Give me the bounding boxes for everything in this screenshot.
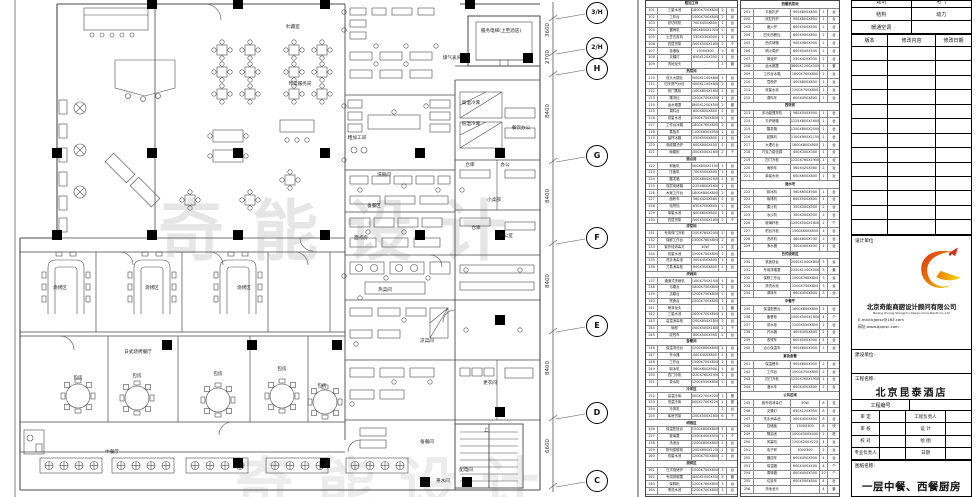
schedule-row: 207微波炉550X420X3302台	[741, 56, 839, 64]
schedule-cell: 开水器	[754, 330, 791, 337]
schedule-cell: 207	[741, 56, 754, 63]
schedule-row: 138污碟台1800X750X8001台	[646, 285, 737, 292]
schedule-row: 201平板扒炉900X800X8501台	[741, 9, 839, 17]
schedule-cell: 台	[727, 441, 738, 447]
schedule-cell: 1	[719, 441, 727, 447]
schedule-cell: 库房货架	[658, 414, 692, 420]
schedule-cell: 台	[828, 322, 840, 329]
schedule-group-row: 粗加工间	[646, 1, 737, 8]
revision-empty-row	[852, 61, 971, 75]
schedule-cell: 紫外线消毒灯	[658, 245, 692, 251]
signature-cell	[880, 448, 906, 459]
schedule-cell: 650X120X350	[692, 55, 719, 61]
schedule-cell: 146	[646, 346, 658, 352]
schedule-cell: 215	[741, 126, 754, 133]
schedule-cell: 台	[727, 454, 738, 460]
design-unit-label: 设计单位	[855, 238, 873, 244]
schedule-cell: 125	[646, 184, 658, 190]
schedule-cell: 块	[828, 424, 840, 431]
project-name: 北京昆泰酒店	[852, 384, 971, 399]
schedule-cell: 清洗水池	[658, 488, 692, 494]
schedule-cell: 1	[719, 62, 727, 68]
schedule-cell: 台	[727, 109, 738, 115]
schedule-cell: 255	[741, 479, 754, 486]
schedule-cell: 204	[741, 32, 754, 39]
schedule-cell: 工作台	[658, 15, 692, 21]
schedule-group-title: 公共区域	[741, 392, 839, 399]
schedule-cell: 1200X200X220	[791, 439, 820, 446]
schedule-cell: 1500X700X800	[791, 369, 820, 376]
schedule-row: 208运水烟罩3600X1200X5001套	[741, 64, 839, 72]
revision-empty-cell	[936, 47, 971, 60]
schedule-cell: 台	[727, 231, 738, 237]
schedule-cell: 1	[719, 434, 727, 440]
signature-cell	[946, 436, 971, 447]
schedule-cell: 1	[820, 126, 828, 133]
schedule-group-title: 宴会备餐	[741, 353, 839, 360]
project-name-label: 工程名称:	[855, 376, 875, 382]
schedule-cell: 550X550X850	[692, 136, 719, 142]
schedule-group-title: 洗碗间	[646, 272, 737, 278]
schedule-row: 107挂墙板1500X3002块	[646, 48, 737, 55]
schedule-cell: 800X900X850	[791, 32, 820, 39]
revision-empty-cell	[852, 177, 888, 190]
schedule-cell: 232	[741, 275, 754, 282]
schedule-cell: 1	[719, 285, 727, 291]
schedule-cell: 收残车	[754, 338, 791, 345]
schedule-cell: 面粉车	[754, 165, 791, 172]
schedule-cell: 2	[719, 218, 727, 224]
schedule-cell: 2	[820, 322, 828, 329]
schedule-row: 116双星水池1500X700X8002台	[646, 116, 737, 123]
schedule-cell: 台	[727, 204, 738, 210]
schedule-cell: 3	[719, 481, 727, 487]
schedule-cell: 1	[820, 228, 828, 235]
schedule-cell: 154	[646, 407, 658, 413]
schedule-cell: 1	[820, 64, 828, 71]
revision-empty-cell	[888, 148, 936, 161]
signature-cell: 日期	[906, 448, 946, 459]
schedule-cell: 227	[741, 228, 754, 235]
schedule-row: 252器皿车600X450X9004台	[741, 455, 839, 463]
schedule-cell: 个	[727, 150, 738, 156]
schedule-cell: 234	[741, 291, 754, 298]
signature-cell	[946, 423, 971, 434]
schedule-group-row: 西餐热菜间	[741, 1, 839, 9]
schedule-cell: 1	[719, 143, 727, 149]
revision-empty-cell	[888, 105, 936, 118]
schedule-cell: 400X400X800	[791, 330, 820, 337]
schedule-cell: 103	[646, 21, 658, 27]
schedule-cell: 144	[646, 326, 658, 332]
schedule-cell: 运水烟罩	[658, 102, 692, 108]
schedule-cell: 1	[719, 373, 727, 379]
schedule-cell: 1200X600X1200	[692, 448, 719, 454]
schedule-cell: 900X600X950	[791, 361, 820, 368]
schedule-cell: 保温售饭台	[658, 427, 692, 433]
schedule-cell: 台	[727, 8, 738, 14]
dimension-label: 8400	[545, 98, 555, 124]
schedule-cell: 101	[646, 8, 658, 14]
schedule-cell: 212	[741, 95, 754, 102]
schedule-cell: 台	[727, 28, 738, 34]
schedule-cell: 台	[727, 427, 738, 433]
schedule-cell: 四门冷柜	[754, 377, 791, 384]
schedule-cell: 233	[741, 283, 754, 290]
schedule-cell: 2	[820, 220, 828, 227]
revision-empty-cell	[936, 119, 971, 132]
schedule-cell: 1200X650X1850	[692, 319, 719, 325]
schedule-cell: 铁板烧台	[754, 259, 791, 266]
schedule-cell: 木案工作台	[658, 190, 692, 196]
schedule-cell: 1	[719, 136, 727, 142]
signature-cell: 工程负责人	[906, 411, 946, 422]
schedule-cell: -	[692, 62, 719, 68]
schedule-row: 216起酥机1100X900X11501台	[741, 134, 839, 142]
schedule-cell: 162	[646, 475, 658, 481]
schedule-cell: 202	[741, 17, 754, 24]
schedule-cell: 248	[741, 424, 754, 431]
schedule-cell: 矮汤灶	[658, 96, 692, 102]
schedule-cell: 126	[646, 190, 658, 196]
revision-empty-row	[852, 90, 971, 104]
schedule-cell: 起酥机	[754, 134, 791, 141]
schedule-cell: 1500X500X1800	[692, 42, 719, 48]
schedule-cell: 台	[727, 312, 738, 318]
schedule-cell: 209	[741, 71, 754, 78]
schedule-cell: 台	[727, 211, 738, 217]
schedule-row: 161日式烧烤炉1500X700X8003台	[646, 468, 737, 475]
schedule-cell: 600X500X900	[692, 333, 719, 339]
schedule-row: 111四头燃气炒灶2400X1100X8002台	[646, 82, 737, 89]
revision-empty-cell	[888, 76, 936, 89]
schedule-cell: 201	[741, 9, 754, 16]
revision-empty-cell	[852, 148, 888, 161]
schedule-row: 239收残车600X500X9004台	[741, 338, 839, 346]
schedule-cell: 102	[646, 15, 658, 21]
schedule-cell: 1	[820, 173, 828, 180]
schedule-cell: 226	[741, 220, 754, 227]
schedule-cell: 2	[719, 407, 727, 413]
schedule-cell: 108	[646, 55, 658, 61]
schedule-cell: 1500X700X800	[692, 468, 719, 474]
schedule-row: 233清洗水池1200X700X8003台	[741, 283, 839, 291]
schedule-cell: 挂墙板	[658, 48, 692, 54]
schedule-cell: 四门冷柜	[754, 158, 791, 165]
schedule-cell: 400X400X800	[692, 353, 719, 359]
schedule-row: 221单星水池600X600X8001台	[741, 173, 839, 181]
schedule-cell: 3	[719, 475, 727, 481]
schedule-cell: 1	[820, 142, 828, 149]
schedule-group-title: 备餐间	[646, 339, 737, 345]
schedule-cell: 保温配餐台	[754, 306, 791, 313]
room-label: 洗碗间	[377, 172, 391, 178]
schedule-row: 250风幕机1200X200X2204台	[741, 439, 839, 447]
schedule-cell: 228	[741, 236, 754, 243]
schedule-cell: 246	[741, 408, 754, 415]
schedule-cell: 双星水池	[658, 116, 692, 122]
company-name-en: Beijing Qineng Shangchu Design Consultan…	[852, 311, 971, 315]
schedule-cell: 茶水柜	[658, 380, 692, 386]
revision-empty-row	[852, 163, 971, 177]
schedule-cell: 122	[646, 163, 658, 169]
dimension-label: 8400	[545, 355, 555, 381]
schedule-cell: 1200X700X800	[791, 87, 820, 94]
schedule-row: 226玻璃杯柜1200X500X18002个	[741, 220, 839, 228]
schedule-cell: 台	[828, 173, 840, 180]
revision-empty-cell	[936, 90, 971, 103]
schedule-group-row: 酒水吧	[741, 181, 839, 189]
schedule-cell: 台	[828, 32, 840, 39]
schedule-cell: -	[791, 486, 820, 493]
schedule-row: 125双层电烤箱1225X800X16001台	[646, 184, 737, 191]
schedule-cell: 8	[820, 424, 828, 431]
schedule-cell: 1000X700X800	[692, 299, 719, 305]
schedule-cell: 2100X750X1500	[692, 278, 719, 284]
schedule-row: 150四门冷柜1220X760X19501台	[646, 373, 737, 380]
schedule-row: 156保温售饭台1500X800X8001台	[646, 427, 737, 434]
schedule-cell: 3600X1200X500	[791, 64, 820, 71]
schedule-cell: 台	[828, 158, 840, 165]
project-number-row: 工程编号	[852, 399, 971, 411]
schedule-cell: 碗柜	[658, 326, 692, 332]
schedule-cell: 专用双门冷柜	[658, 231, 692, 237]
room-label: 烧烤区	[237, 285, 251, 291]
revision-empty-cell	[936, 61, 971, 74]
room-label: 包房	[317, 383, 326, 389]
schedule-group-row: 热菜间	[646, 69, 737, 76]
schedule-cell: 1800X700X800	[692, 312, 719, 318]
revision-empty-cell	[936, 76, 971, 89]
schedule-row: 225冰沙机300X300X5001台	[741, 212, 839, 220]
schedule-cell: 1800X760X800	[692, 123, 719, 129]
schedule-cell: 台	[727, 21, 738, 27]
schedule-cell: 净水器	[754, 244, 791, 251]
schedule-cell: 1100X900X1150	[791, 134, 820, 141]
schedule-cell: 1200X700X800	[692, 251, 719, 257]
schedule-cell: 双缸炸炉	[754, 17, 791, 24]
schedule-cell: 600X450X800	[791, 385, 820, 392]
signature-cell: 审 核	[852, 423, 880, 434]
schedule-group-title: 烧烤区	[646, 461, 737, 467]
schedule-cell: 台	[828, 17, 840, 24]
schedule-row: 140残食台1000X700X8001台	[646, 299, 737, 306]
discipline-cell: 动力	[912, 8, 972, 20]
schedule-cell: 700X450X800	[692, 21, 719, 27]
schedule-cell: 2	[719, 109, 727, 115]
schedule-cell: 专用排烟罩	[658, 475, 692, 481]
schedule-cell: 台	[727, 130, 738, 136]
schedule-cell: 530X530X900	[692, 35, 719, 41]
schedule-cell: 玻璃杯柜	[754, 220, 791, 227]
schedule-cell: 111	[646, 82, 658, 88]
discipline-cell: 电气	[912, 0, 972, 7]
schedule-row: 256洗地龙头-4套	[741, 486, 839, 494]
schedule-cell: 400X800X850	[791, 79, 820, 86]
schedule-cell: 2	[820, 32, 828, 39]
build-unit-label: 建设单位:	[855, 352, 875, 358]
dimension-label: 2700	[545, 44, 555, 70]
signature-row: 校 对绘 图	[852, 436, 971, 448]
schedule-row: 213多功能搅拌机560X500X9001台	[741, 111, 839, 119]
schedule-cell: 6	[820, 416, 828, 423]
schedule-cell: 206	[741, 48, 754, 55]
schedule-cell: 1500X700X800	[692, 360, 719, 366]
schedule-cell: 器皿车	[754, 455, 791, 462]
schedule-cell: 洗地龙头	[754, 486, 791, 493]
schedule-cell: 105	[646, 35, 658, 41]
room-label: 配电间	[459, 467, 473, 473]
room-label: 茶水间	[436, 478, 450, 484]
schedule-row: 222制冰机560X600X9001台	[741, 189, 839, 197]
revision-empty-cell	[852, 61, 888, 74]
schedule-cell: 2	[719, 42, 727, 48]
revision-header-cell: 修改内容	[888, 35, 936, 46]
room-label: 中餐厅	[105, 449, 119, 455]
schedule-cell: 8	[820, 408, 828, 415]
schedule-cell: 1	[719, 305, 727, 311]
schedule-cell: 台	[828, 142, 840, 149]
schedule-row: 227吧台冷柜1500X600X8501台	[741, 228, 839, 236]
revision-empty-cell	[852, 206, 888, 219]
room-label: 煤气表间	[443, 55, 461, 61]
schedule-row: 122和面机500X600X11001台	[646, 163, 737, 170]
schedule-cell: 1	[820, 134, 828, 141]
schedule-cell: 2	[820, 369, 828, 376]
schedule-cell: 台	[727, 265, 738, 271]
schedule-cell: 保鲜柜	[658, 481, 692, 487]
schedule-group-row: 中餐厅	[741, 298, 839, 306]
schedule-cell: 1200X760X800	[692, 481, 719, 487]
schedule-cell: 600X450X800	[791, 291, 820, 298]
schedule-cell: 洗杯机	[754, 236, 791, 243]
schedule-row: 240点心保温车900X600X9501台	[741, 345, 839, 353]
revision-empty-cell	[936, 134, 971, 147]
schedule-cell: 600X600X800	[692, 211, 719, 217]
title-block: 建筑电气结构动力暖通空调 版本修改内容修改日期 设计单位	[851, 0, 972, 497]
schedule-cell: 129	[646, 211, 658, 217]
schedule-cell: 1200X750X800	[692, 292, 719, 298]
schedule-cell: 208	[741, 64, 754, 71]
dimension-label: 3600	[545, 17, 555, 43]
schedule-cell: 清洗水池	[754, 283, 791, 290]
schedule-cell: 2	[719, 123, 727, 129]
schedule-cell: 242	[741, 369, 754, 376]
schedule-cell: 1	[719, 380, 727, 386]
schedule-cell: 碗碟柜	[658, 150, 692, 156]
schedule-cell: 座	[727, 393, 738, 399]
schedule-cell: 800X540X540	[791, 48, 820, 55]
schedule-cell: 台	[727, 96, 738, 102]
schedule-cell: 保鲜工作台	[658, 238, 692, 244]
schedule-row: 206明火焗炉800X540X5401台	[741, 48, 839, 56]
schedule-cell: 台	[828, 71, 840, 78]
schedule-cell: 113	[646, 96, 658, 102]
schedule-cell: 109	[646, 62, 658, 68]
schedule-cell: 145	[646, 333, 658, 339]
schedule-cell: 119	[646, 136, 658, 142]
schedule-cell: 1800X700X800	[692, 8, 719, 14]
schedule-cell: 560X420X580	[692, 197, 719, 203]
schedule-row: 218巧克力熔化锅400X300X3001台	[741, 150, 839, 158]
schedule-cell: 1	[820, 17, 828, 24]
schedule-cell: 灭蝇灯	[658, 55, 692, 61]
discipline-cell: 结构	[852, 8, 912, 20]
revision-empty-cell	[888, 191, 936, 204]
revision-empty-cell	[888, 61, 936, 74]
schedule-cell: 调味车	[754, 291, 791, 298]
schedule-cell: 1225X800X1600	[692, 184, 719, 190]
schedule-cell: 2	[719, 15, 727, 21]
revision-empty-rows	[852, 47, 971, 235]
schedule-cell: 工作台	[658, 360, 692, 366]
schedule-cell: 152	[646, 393, 658, 399]
room-label: 备餐区	[367, 203, 381, 209]
revision-empty-cell	[936, 148, 971, 161]
schedule-cell: 套	[727, 62, 738, 68]
schedule-cell: 果汁机	[754, 205, 791, 212]
schedule-group-row: 烧烤区	[646, 461, 737, 468]
schedule-row: 164清洗水池1200X700X8003台	[646, 488, 737, 495]
schedule-cell: 117	[646, 123, 658, 129]
schedule-cell: 台	[727, 177, 738, 183]
schedule-cell: 300X300	[791, 447, 820, 454]
schedule-cell: 1225X800X1600	[791, 118, 820, 125]
schedule-cell: 台	[727, 333, 738, 339]
schedule-cell: 醒发箱	[754, 126, 791, 133]
schedule-group-row: 明档区	[646, 420, 737, 427]
schedule-cell: 台	[727, 15, 738, 21]
schedule-cell: 调料台	[658, 109, 692, 115]
schedule-cell: 挂墙板	[754, 424, 791, 431]
schedule-cell: 300X300X500	[791, 205, 820, 212]
revision-empty-cell	[936, 163, 971, 176]
schedule-row: 241保温餐车900X600X9502台	[741, 361, 839, 369]
schedule-cell: 1500X800X800	[692, 427, 719, 433]
grid-bubble-E: E	[586, 315, 608, 337]
schedule-cell: 台	[727, 468, 738, 474]
schedule-cell: 1500X500X1800	[692, 218, 719, 224]
equipment-schedule-2: 西餐热菜间201平板扒炉900X800X8501台202双缸炸炉900X800X…	[740, 0, 840, 497]
revision-empty-cell	[936, 105, 971, 118]
revision-empty-cell	[888, 206, 936, 219]
schedule-cell: 1	[719, 299, 727, 305]
schedule-cell: 台	[828, 56, 840, 63]
schedule-cell: 工作台冰箱	[658, 123, 692, 129]
schedule-cell: 1	[719, 251, 727, 257]
signature-cell	[880, 436, 906, 447]
schedule-cell: 230	[741, 259, 754, 266]
schedule-row: 101三星水池1800X700X8002台	[646, 8, 737, 15]
schedule-cell: 套	[828, 267, 840, 274]
room-label: 小卖部	[487, 197, 501, 203]
schedule-cell: 冷风机	[658, 407, 692, 413]
revision-empty-cell	[936, 191, 971, 204]
schedule-cell: 台	[828, 134, 840, 141]
schedule-cell: 汤池台	[658, 441, 692, 447]
schedule-cell: 2	[820, 432, 828, 439]
schedule-cell: 141	[646, 305, 658, 311]
schedule-cell: 支	[828, 400, 840, 407]
schedule-group-row: 凉菜间	[646, 224, 737, 231]
schedule-cell: 1	[719, 427, 727, 433]
schedule-cell: 1220X760X1950	[791, 158, 820, 165]
schedule-cell: 143	[646, 319, 658, 325]
schedule-cell: 1	[719, 454, 727, 460]
schedule-cell: 223	[741, 197, 754, 204]
schedule-cell: 2400X1100X800	[692, 82, 719, 88]
schedule-cell: 600X500X800	[791, 479, 820, 486]
